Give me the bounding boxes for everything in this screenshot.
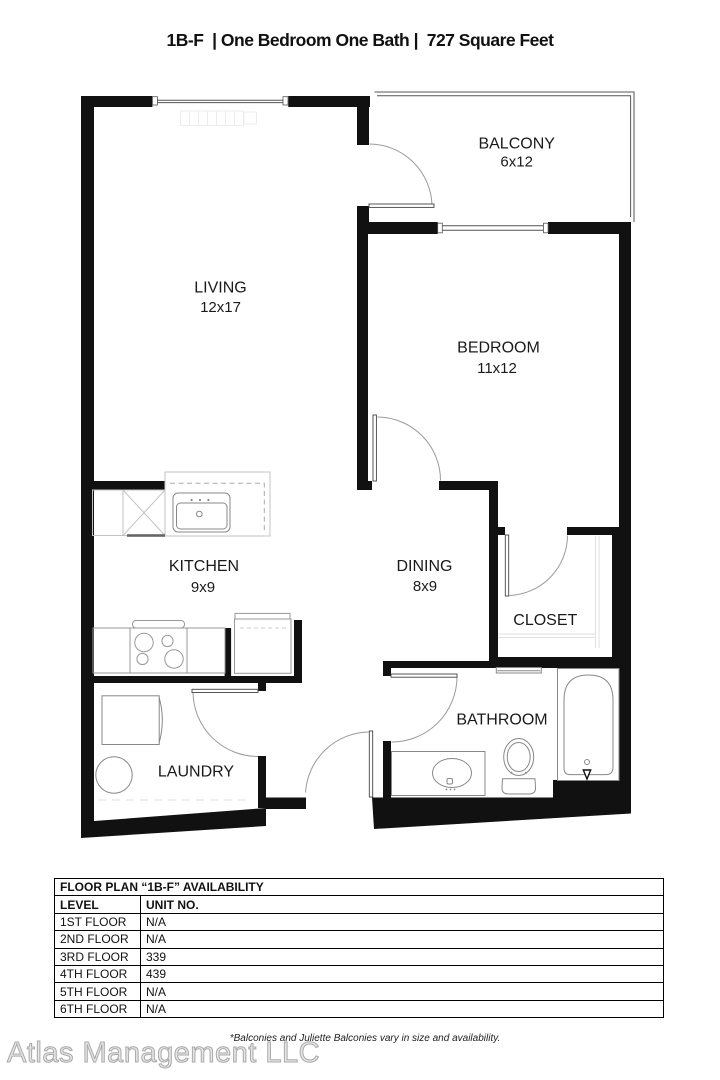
svg-text:LIVING: LIVING [194, 279, 246, 296]
svg-text:BALCONY: BALCONY [478, 135, 555, 152]
svg-text:8x9: 8x9 [413, 578, 437, 595]
svg-text:CLOSET: CLOSET [513, 612, 577, 629]
svg-text:BATHROOM: BATHROOM [456, 712, 547, 729]
svg-text:KITCHEN: KITCHEN [169, 558, 239, 575]
svg-text:DINING: DINING [397, 558, 453, 575]
svg-text:BEDROOM: BEDROOM [457, 339, 540, 356]
svg-text:6x12: 6x12 [500, 153, 533, 170]
svg-text:LAUNDRY: LAUNDRY [158, 763, 235, 780]
svg-text:12x17: 12x17 [200, 299, 241, 316]
svg-text:11x12: 11x12 [477, 360, 517, 377]
svg-text:9x9: 9x9 [191, 579, 215, 596]
